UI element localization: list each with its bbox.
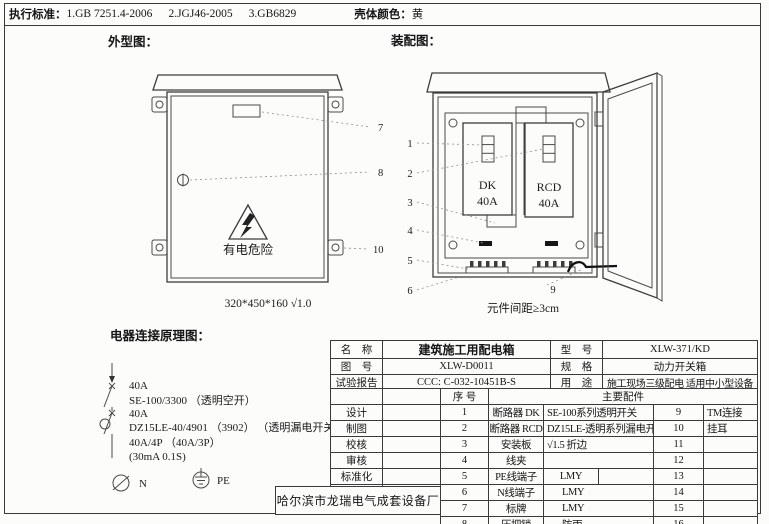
assembly-roof [427,73,610,92]
schematic-line: SE-100/3300 （透明空开） [129,393,256,407]
standard-item: 3.GB6829 [249,8,297,20]
breaker-dk: DK 40A [463,123,512,215]
serial-header: 序 号 [441,389,489,405]
table-row: 名 称 建筑施工用配电箱 型 号 XLW-371/KD [331,341,758,359]
part-name [704,469,758,485]
info-table: 名 称 建筑施工用配电箱 型 号 XLW-371/KD 图 号 XLW-D001… [330,340,758,391]
part-no: 14 [654,485,704,501]
part-name: TM连接 [704,405,758,421]
breaker-dk-name: DK [479,178,497,192]
neutral-symbol [113,475,129,491]
part-no: 16 [654,517,704,524]
part-no: 9 [654,405,704,421]
model-value: XLW-371/KD [603,341,758,359]
callout-1: 1 [407,139,412,150]
spec-value: 动力开关箱 [603,359,758,375]
part-spec [544,453,654,469]
part-name: 安装板 [489,437,544,453]
signoff-draft: 制图 [331,421,383,437]
part-spec: √1.5 折边 [544,437,654,453]
outline-drawing: 有电危险 320*450*160 √1.0 7 8 10 [90,55,390,315]
part-no: 8 [441,517,489,524]
standards-bar: 执行标准： 1.GB 7251.4-2006 2.JGJ46-2005 3.GB… [4,3,761,26]
part-spec: SE-100系列透明开关 [544,405,654,421]
signoff-design: 设计 [331,405,383,421]
spec-label: 规 格 [551,359,603,375]
drawing-no-label: 图 号 [331,359,383,375]
drawing-sheet: 执行标准： 1.GB 7251.4-2006 2.JGJ46-2005 3.GB… [0,0,769,524]
terminal-strips [466,261,575,273]
assembly-drawing: DK 40A RCD 40A [395,55,725,320]
callout-10: 10 [373,245,384,256]
callout-3: 3 [407,198,412,209]
part-spec: LMY [544,485,654,501]
part-no: 2 [441,421,489,437]
earth-label: PE [217,475,230,487]
label-strips [479,241,558,246]
part-no: 7 [441,501,489,517]
part-name: 标牌 [489,501,544,517]
part-name [704,437,758,453]
schematic-line: 40A/4P （40A/3P） [129,436,221,449]
schematic-line: (30mA 0.1S) [129,451,186,463]
part-no: 3 [441,437,489,453]
breaker-dk-rating: 40A [477,194,498,208]
signoff-check: 校核 [331,437,383,453]
part-no: 6 [441,485,489,501]
callout-9: 9 [550,285,555,296]
part-no: 13 [654,469,704,485]
callout-8: 8 [378,168,383,179]
callout-5: 5 [407,256,412,267]
part-name: 断路器 RCD [489,421,544,437]
outline-callouts: 7 8 10 [190,112,384,256]
assembly-section-title: 装配图： [391,30,441,49]
callout-2: 2 [407,169,412,180]
callout-6: 6 [407,286,412,297]
signoff-review: 审核 [331,453,383,469]
parts-header-row: 序 号 主要配件 [331,389,758,405]
part-spec: LMY [544,469,599,485]
schematic-line: 40A [129,380,148,392]
table-row: 审核 4 线夹 12 [331,453,758,469]
breaker-rcd: RCD 40A [525,123,573,217]
part-name [704,453,758,469]
name-label: 名 称 [331,341,383,359]
earth-symbol [193,468,209,488]
model-label: 型 号 [551,341,603,359]
standard-item: 1.GB 7251.4-2006 [67,8,153,20]
warning-text: 有电危险 [223,242,274,257]
part-name [704,485,758,501]
callout-7: 7 [378,123,383,134]
dimension-text: 320*450*160 √1.0 [225,297,312,310]
part-no: 1 [441,405,489,421]
signoff-standardize: 标准化 [331,469,383,485]
part-spec: DZ15LE-透明系列漏电开 [544,421,654,437]
part-no: 4 [441,453,489,469]
part-name: PE线端子 [489,469,544,485]
table-row: 校核 3 安装板 √1.5 折边 11 [331,437,758,453]
cabinet-roof [153,75,342,90]
table-row: 设计 1 断路器 DK SE-100系列透明开关 9 TM连接 [331,405,758,421]
lock-icon [178,174,189,187]
schematic-line: DZ15LE-40/4901 （3902） （透明漏电开关） [129,420,345,434]
shell-color-value: 黄 [412,6,424,22]
part-no: 15 [654,501,704,517]
part-spec: LMY [544,501,654,517]
wiring-duct [487,107,546,227]
table-row: 制图 2 断路器 RCD DZ15LE-透明系列漏电开 10 挂耳 [331,421,758,437]
part-no: 10 [654,421,704,437]
manufacturer-name: 哈尔滨市龙瑞电气成套设备厂 [275,486,441,515]
drawing-no-value: XLW-D0011 [383,359,551,375]
spacing-note: 元件间距≥3cm [487,301,559,315]
standards-label: 执行标准： [9,6,67,22]
breaker-rcd-name: RCD [537,180,562,194]
nameplate-window [233,105,260,117]
part-name: 断路器 DK [489,405,544,421]
part-no: 11 [654,437,704,453]
breaker-rcd-rating: 40A [539,196,560,210]
shell-color-label: 壳体颜色： [354,6,412,22]
part-spec: 防雨 [544,517,654,524]
neutral-label: N [139,478,147,490]
part-no: 12 [654,453,704,469]
table-row: 标准化 5 PE线端子 LMY 13 [331,469,758,485]
part-name: N线端子 [489,485,544,501]
product-name: 建筑施工用配电箱 [383,341,551,359]
mounting-ears [152,97,343,255]
schematic-section-title: 电器连接原理图： [110,325,210,344]
part-name: 压把锁 [489,517,544,524]
part-no: 5 [441,469,489,485]
standard-item: 2.JGJ46-2005 [168,8,232,20]
part-name: 挂耳 [704,421,758,437]
schematic-notes: 40A SE-100/3300 （透明空开） 40A DZ15LE-40/490… [129,380,345,463]
table-row: 图 号 XLW-D0011 规 格 动力开关箱 [331,359,758,375]
schematic-line: 40A [129,408,148,420]
outline-section-title: 外型图： [108,31,158,50]
part-name [704,501,758,517]
electric-hazard-icon [229,205,267,239]
main-parts-header: 主要配件 [489,389,758,405]
callout-4: 4 [407,226,413,237]
part-name [704,517,758,524]
part-name: 线夹 [489,453,544,469]
breaker-symbols [100,363,115,458]
